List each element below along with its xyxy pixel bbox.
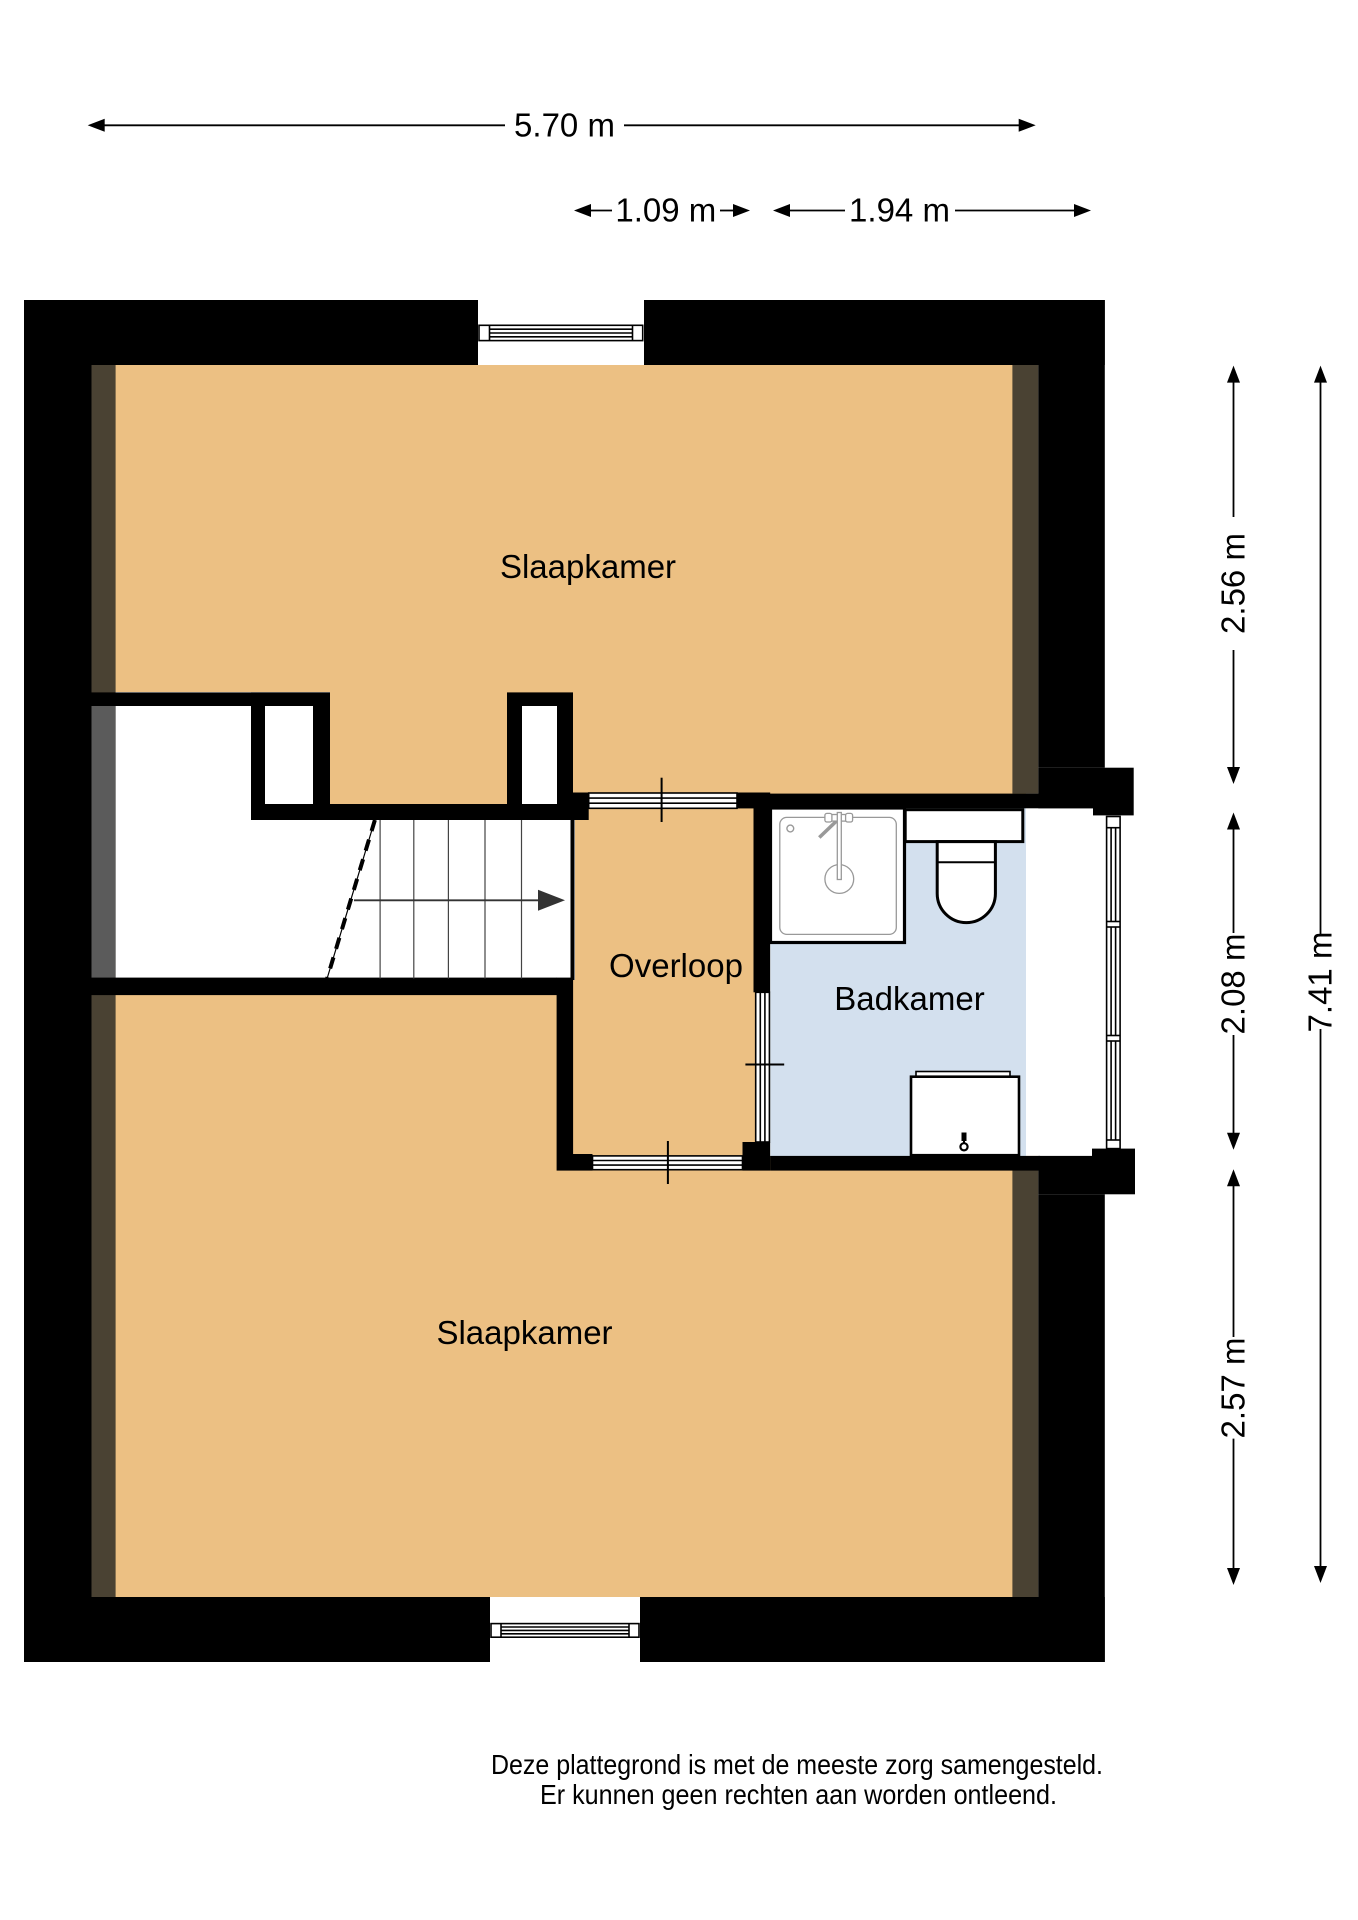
svg-text:1.09 m: 1.09 m [615,192,716,229]
svg-text:Er kunnen geen rechten aan wor: Er kunnen geen rechten aan worden ontlee… [540,1779,1057,1810]
svg-text:7.41 m: 7.41 m [1302,932,1339,1033]
svg-text:Deze plattegrond is met de mee: Deze plattegrond is met de meeste zorg s… [491,1749,1103,1780]
svg-text:2.56 m: 2.56 m [1215,533,1252,634]
svg-text:2.08 m: 2.08 m [1215,934,1252,1035]
svg-text:Overloop: Overloop [609,947,743,984]
svg-text:5.70 m: 5.70 m [514,107,615,144]
svg-text:1.94 m: 1.94 m [849,192,950,229]
svg-text:Badkamer: Badkamer [834,980,984,1017]
svg-text:Slaapkamer: Slaapkamer [436,1314,612,1351]
svg-text:Slaapkamer: Slaapkamer [500,548,676,585]
svg-text:2.57 m: 2.57 m [1215,1338,1252,1439]
